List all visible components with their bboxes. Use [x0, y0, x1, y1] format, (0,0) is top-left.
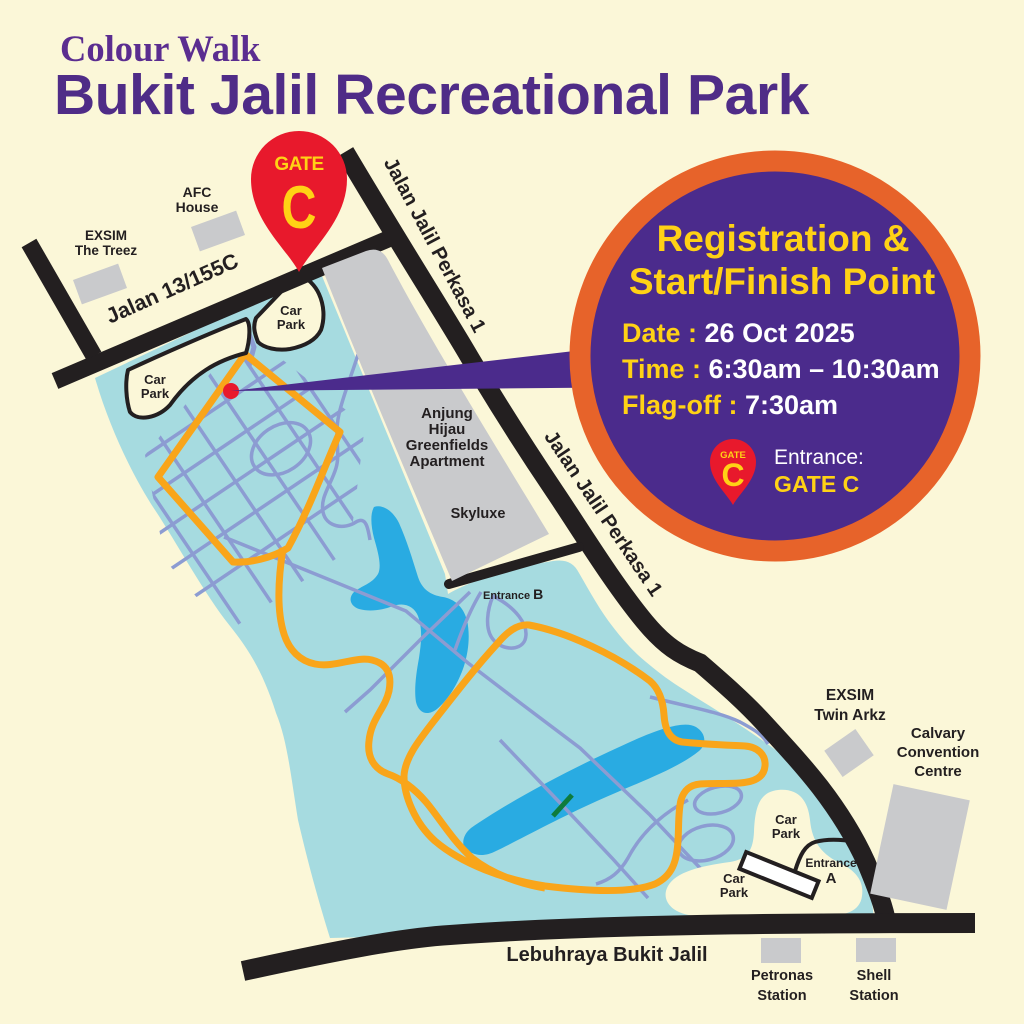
svg-text:Calvary: Calvary	[911, 725, 966, 742]
svg-text:Station: Station	[757, 988, 806, 1004]
svg-text:Time : 6:30am – 10:30am: Time : 6:30am – 10:30am	[622, 354, 940, 384]
svg-text:House: House	[176, 199, 219, 215]
svg-text:EXSIM: EXSIM	[85, 228, 127, 243]
svg-text:Station: Station	[849, 988, 898, 1004]
svg-text:EXSIM: EXSIM	[826, 687, 874, 704]
svg-text:Car: Car	[723, 871, 745, 886]
svg-text:The Treez: The Treez	[75, 243, 138, 258]
svg-text:Shell: Shell	[857, 968, 892, 984]
svg-text:A: A	[826, 870, 837, 887]
svg-text:Car: Car	[775, 812, 797, 827]
svg-text:Entrance: Entrance	[805, 856, 857, 870]
svg-text:Park: Park	[141, 386, 170, 401]
svg-text:Park: Park	[772, 826, 801, 841]
svg-text:C: C	[721, 457, 744, 493]
svg-text:GATE: GATE	[274, 154, 323, 175]
svg-text:C: C	[282, 174, 317, 241]
svg-text:Date : 26 Oct 2025: Date : 26 Oct 2025	[622, 318, 855, 348]
svg-text:Start/Finish Point: Start/Finish Point	[629, 261, 935, 302]
svg-text:Bukit Jalil Recreational Park: Bukit Jalil Recreational Park	[54, 63, 810, 127]
svg-text:Flag-off : 7:30am: Flag-off : 7:30am	[622, 390, 838, 420]
svg-text:Car: Car	[144, 372, 166, 387]
svg-text:Lebuhraya Bukit Jalil: Lebuhraya Bukit Jalil	[506, 944, 707, 966]
svg-text:Registration &: Registration &	[657, 218, 910, 259]
svg-text:Car: Car	[280, 303, 302, 318]
svg-text:Hijau: Hijau	[429, 421, 466, 438]
svg-text:GATE C: GATE C	[774, 471, 859, 497]
svg-text:Park: Park	[277, 317, 306, 332]
svg-text:Apartment: Apartment	[409, 453, 484, 470]
svg-text:Entrance:: Entrance:	[774, 446, 864, 469]
svg-text:Park: Park	[720, 885, 749, 900]
svg-text:Convention: Convention	[897, 744, 980, 761]
svg-text:Petronas: Petronas	[751, 968, 813, 984]
svg-text:Anjung: Anjung	[421, 405, 473, 422]
svg-text:Greenfields: Greenfields	[406, 437, 489, 454]
svg-text:AFC: AFC	[183, 184, 212, 200]
svg-text:Twin Arkz: Twin Arkz	[814, 707, 886, 724]
svg-text:Centre: Centre	[914, 763, 962, 780]
svg-text:Skyluxe: Skyluxe	[451, 506, 506, 522]
